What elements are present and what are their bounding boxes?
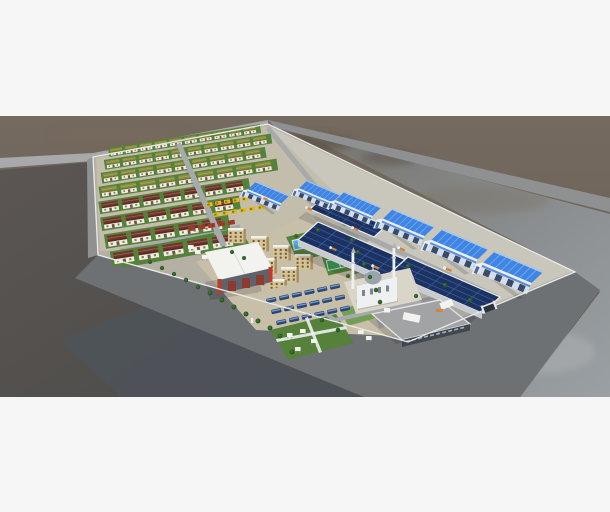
red-column-left [218,279,222,294]
masterplan-render [0,0,610,512]
statue [251,318,253,323]
bottom-band [0,397,610,512]
red-column-right [269,267,273,282]
top-band [0,0,610,116]
mosque-dome [365,270,382,285]
render-canvas [0,0,610,512]
